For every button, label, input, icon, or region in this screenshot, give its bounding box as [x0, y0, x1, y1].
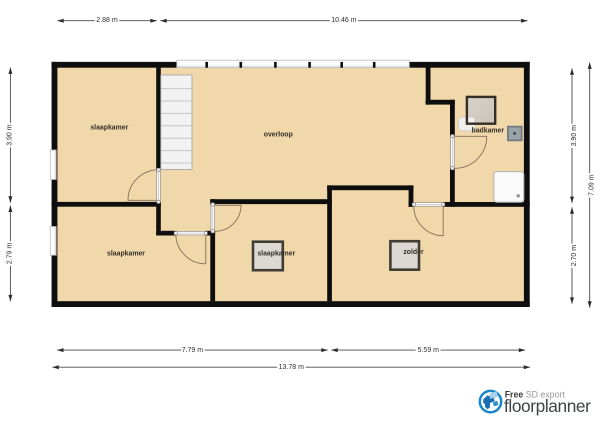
- svg-text:slaapkamer: slaapkamer: [90, 124, 128, 131]
- svg-text:5.59 m: 5.59 m: [418, 347, 440, 354]
- svg-text:zolder: zolder: [403, 249, 424, 256]
- svg-text:2.88 m: 2.88 m: [96, 17, 118, 24]
- svg-text:slaapkamer: slaapkamer: [257, 250, 295, 257]
- svg-text:floorplanner: floorplanner: [504, 396, 591, 416]
- svg-text:13.78 m: 13.78 m: [279, 364, 304, 371]
- svg-text:10.46 m: 10.46 m: [331, 17, 356, 24]
- svg-text:3.90 m: 3.90 m: [6, 124, 13, 146]
- svg-text:3.90 m: 3.90 m: [571, 125, 578, 147]
- svg-text:badkamer: badkamer: [472, 128, 505, 135]
- svg-text:slaapkamer: slaapkamer: [107, 250, 145, 257]
- svg-text:2.70 m: 2.70 m: [571, 245, 578, 267]
- svg-text:7.79 m: 7.79 m: [182, 347, 204, 354]
- svg-text:2.79 m: 2.79 m: [6, 243, 13, 265]
- svg-text:overloop: overloop: [264, 131, 293, 138]
- svg-text:7.09 m: 7.09 m: [589, 174, 596, 196]
